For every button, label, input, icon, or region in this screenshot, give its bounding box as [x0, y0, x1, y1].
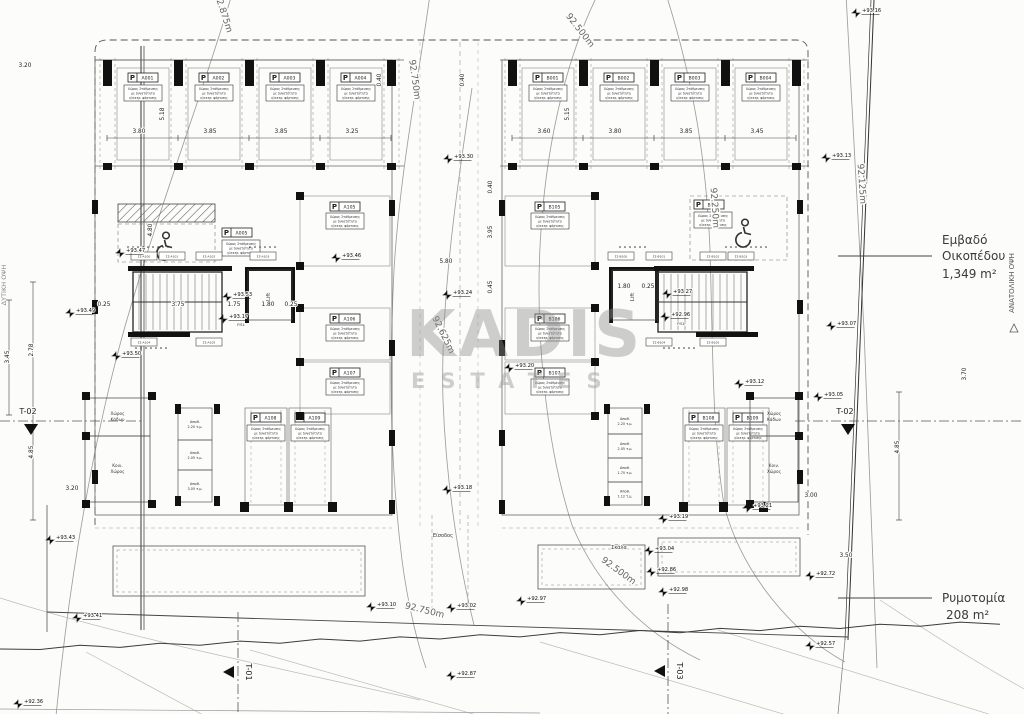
planter [658, 538, 800, 576]
parking-note-text: Χώρος Στάθμευσης [533, 87, 563, 91]
parking-note-text: ηλεκτρ. φόρτισης [534, 96, 562, 100]
column [389, 200, 395, 216]
vent-dot [730, 246, 732, 248]
column [316, 60, 325, 86]
room-label: Κοιν. [769, 463, 779, 468]
storage-label: Αποθ. [620, 442, 630, 446]
parking-note-text: με δυνατότητα [538, 331, 562, 335]
parking-stall-id: B109 [747, 416, 759, 422]
column [174, 163, 183, 170]
plot-area-value: 1,349 m² [942, 267, 997, 281]
vent-dot [745, 246, 747, 248]
vent-dot [167, 246, 169, 248]
core-wall [128, 332, 190, 337]
column [591, 358, 599, 366]
ground-line [718, 630, 995, 714]
vent-dot [157, 246, 159, 248]
column [82, 392, 90, 400]
column [214, 404, 220, 414]
column [499, 500, 505, 514]
dimension-text: 5.15 [565, 107, 571, 120]
spot-level-value: +93.18 [453, 485, 472, 491]
spot-level-value: +93.20 [515, 363, 534, 369]
column [679, 502, 688, 512]
parking-stall [289, 408, 331, 505]
parking-p-glyph: P [535, 74, 540, 82]
column [746, 392, 754, 400]
parking-note-text: με δυνατότητα [333, 385, 357, 389]
section-arrow [654, 665, 665, 677]
parking-note-text: Χώρος Στάθμευσης [330, 215, 360, 219]
vent-dot [629, 246, 631, 248]
parking-p-glyph: P [224, 229, 229, 237]
right-boundary [848, 0, 874, 640]
tag-box-label: ΣΣ-Β101 [653, 255, 666, 259]
vent-dot [740, 246, 742, 248]
dimension-text: 0.45 [488, 280, 494, 293]
section-arrow [223, 666, 234, 678]
column [389, 340, 395, 356]
parking-p-glyph: P [272, 74, 277, 82]
column [245, 163, 254, 170]
parking-note-text: με δυνατότητα [538, 385, 562, 389]
section-markers: T-02T-02T-01T-03 [0, 407, 1024, 714]
tag-box-label: ΣΣ-Α101 [166, 255, 179, 259]
tag-box-label: ΣΣ-Α104 [138, 341, 151, 345]
wheelchair-icon [736, 219, 751, 247]
contour-lines [0, 0, 1024, 714]
annotation-road-widening: Ρυμοτομία 208 m² [838, 591, 1005, 622]
storage-label: Αποθ. [620, 417, 630, 421]
parking-stall-id: A004 [355, 76, 367, 82]
spot-level-value: +92.97 [527, 596, 546, 602]
parking-note-text: με δυνατότητα [736, 431, 760, 435]
section-label: T-01 [244, 662, 253, 680]
parking-note-text: Χώρος Στάθμευσης [341, 87, 371, 91]
wheelchair-head [163, 232, 170, 239]
parking-note-text: Χώρος Στάθμευσης [675, 87, 705, 91]
site-boundary [0, 0, 1000, 714]
parking-note-text: με δυνατότητα [678, 91, 702, 95]
vent-dot [755, 246, 757, 248]
spot-level-value: +93.16 [862, 8, 881, 14]
parking-note-text: με δυνατότητα [692, 431, 716, 435]
column [499, 430, 505, 446]
column [499, 200, 505, 216]
parking-stall-id: B001 [547, 76, 559, 82]
parking-note-text: Χώρος Στάθμευσης [535, 327, 565, 331]
parking-note-text: Χώρος Στάθμευσης [270, 87, 300, 91]
parking-note-text: Χώρος Στάθμευσης [330, 327, 360, 331]
column [644, 404, 650, 414]
storage-area: 2.05 τ.μ. [618, 447, 633, 451]
spot-level-value: +93.05 [824, 392, 843, 398]
parking-p-glyph: P [332, 203, 337, 211]
lift-wall [609, 267, 613, 323]
east-elevation-label: ΑΝΑΤΟΛΙΚΗ ΟΨΗ [1008, 253, 1016, 313]
misc-label: Είσοδος [433, 532, 453, 539]
spot-level-value: +93.30 [454, 154, 473, 160]
dimension-text: 4.85 [29, 445, 35, 458]
column [92, 470, 98, 484]
storage-label: Αποθ. [190, 451, 200, 455]
parking-note-text: Χώρος Στάθμευσης [689, 427, 719, 431]
parking-note-text: ηλεκτρ. φόρτισης [676, 96, 704, 100]
spot-level-value: +92.98 [669, 587, 688, 593]
core-wall [128, 266, 232, 271]
dimension-text: 0.40 [488, 180, 494, 193]
storage-area: 1.12 τ.μ. [618, 495, 633, 499]
tag-box-label: ΣΣ-Β100 [615, 255, 628, 259]
vent-dot [269, 246, 271, 248]
plot-area-label-2: Οικοπέδου [942, 249, 1005, 263]
vent-dot [750, 246, 752, 248]
column [591, 262, 599, 270]
parking-note-text: ηλεκτρ. φόρτισης [129, 96, 157, 100]
dimension-text: 3.80 [133, 129, 146, 135]
vent-dot [693, 347, 695, 349]
parking-note-text: με δυνατότητα [298, 431, 322, 435]
parking-note-text: ηλεκτρ. φόρτισης [200, 96, 228, 100]
spot-level-value: +93.49 [76, 308, 95, 314]
parking-p-glyph: P [537, 315, 542, 323]
contour-label: 92.500m [563, 12, 596, 50]
parking-stall-id: A003 [284, 76, 296, 82]
spot-level-value: +93.02 [457, 603, 476, 609]
contour-92 [391, 0, 430, 668]
column [387, 163, 396, 170]
ground-line [540, 642, 790, 714]
column [650, 60, 659, 86]
spot-level-value: +93.27 [673, 289, 692, 295]
storage-label: Αποθ. [620, 490, 630, 494]
column [328, 502, 337, 512]
parking-note-text: με δυνατότητα [202, 91, 226, 95]
column [92, 200, 98, 214]
spot-level-value: +93.17 [229, 314, 248, 320]
parking-note-text: ηλεκτρ. φόρτισης [536, 224, 564, 228]
column [296, 412, 304, 420]
column [797, 470, 803, 484]
tag-box-label: ΣΣ-Β105 [707, 341, 720, 345]
spot-level-value: +93.13 [832, 153, 851, 159]
parking-note-text: με δυνατότητα [131, 91, 155, 95]
vent-dot [735, 246, 737, 248]
column [795, 432, 803, 440]
parking-note-text: ηλεκτρ. φόρτισης [331, 390, 359, 394]
column [174, 60, 183, 86]
parking-p-glyph: P [748, 74, 753, 82]
dimension-text: 4.85 [895, 440, 901, 453]
parking-note-text: ηλεκτρ. φόρτισης [536, 336, 564, 340]
column [387, 60, 396, 86]
parking-note-text: Χώρος Στάθμευσης [199, 87, 229, 91]
column [82, 432, 90, 440]
vent-dot [725, 246, 727, 248]
spot-level-value: +93.43 [56, 535, 75, 541]
column [797, 200, 803, 214]
dimension-text: 3.45 [751, 129, 764, 135]
parking-note-text: Χώρος Στάθμευσης [535, 215, 565, 219]
vent-dot [249, 246, 251, 248]
spot-level-value: +92.57 [816, 641, 835, 647]
dimensions: 3.203.803.853.853.253.603.803.853.455.18… [5, 63, 968, 559]
parking-p-glyph: P [696, 201, 701, 209]
core-wall [696, 332, 758, 337]
vent-dot [668, 347, 670, 349]
parking-note-text: με δυνατότητα [333, 331, 357, 335]
tag-box-label: ΣΣ-Α102 [203, 255, 216, 259]
sheet-bottom-line [0, 709, 540, 713]
planter [113, 546, 365, 596]
path [744, 227, 752, 235]
right-boundary-ext [838, 640, 845, 714]
parking-note-text: ηλεκτρ. φόρτισης [331, 336, 359, 340]
dimension-text: 3.50 [840, 553, 853, 559]
spot-level-value: +93.12 [745, 379, 764, 385]
parking-note-text: με δυνατότητα [254, 431, 278, 435]
ground-line [250, 650, 480, 714]
road-widening-line [47, 612, 848, 637]
room-label: Κάδων [767, 417, 782, 422]
parking-stall-id: B002 [618, 76, 630, 82]
room-label: Χώρος [110, 469, 125, 474]
vent-dot [663, 347, 665, 349]
vent-dot [688, 347, 690, 349]
column [797, 300, 803, 314]
storage-area: 2.20 τ.μ. [618, 422, 633, 426]
parking-stall-id: A005 [236, 231, 248, 237]
storage-label: Αποθ. [190, 420, 200, 424]
dimension-text: 0.25 [642, 284, 655, 290]
column [175, 404, 181, 414]
lift-label: Lift [266, 292, 272, 301]
parking-stall-id: A105 [344, 205, 356, 211]
parking-note-text: Χώρος Στάθμευσης [535, 381, 565, 385]
parking-stall [245, 408, 287, 505]
parking-p-glyph: P [332, 369, 337, 377]
spot-level-value: +92.86 [657, 567, 676, 573]
parking-note-text: με δυνατότητα [607, 91, 631, 95]
room-label: Χώρος [767, 411, 782, 416]
dimension-text: 3.20 [19, 63, 32, 69]
column [579, 60, 588, 86]
parking-stall-id: A002 [213, 76, 225, 82]
site-plan-drawing: PA001Χώρος Στάθμευσηςμε δυνατότηταηλεκτρ… [0, 0, 1024, 714]
misc-label: Σκάλα [611, 544, 627, 551]
column [245, 60, 254, 86]
vent-dot [155, 347, 157, 349]
lift-wall [291, 267, 295, 323]
column [604, 496, 610, 506]
parking-note-text: με δυνατότητα [333, 219, 357, 223]
parking-note-text: ηλεκτρ. φόρτισης [271, 96, 299, 100]
tag-box-label: ΣΣ-Α103 [257, 255, 270, 259]
parking-note-text: ηλεκτρ. φόρτισης [296, 436, 324, 440]
parking-stall-id: B106 [549, 317, 561, 323]
parking-note-text: ηλεκτρ. φόρτισης [252, 436, 280, 440]
east-elevation-arrow-icon [1010, 324, 1018, 332]
misc-label: P.SL [237, 322, 245, 327]
vent-dot [160, 347, 162, 349]
parking-note-text: Χώρος Στάθμευσης [746, 87, 776, 91]
path [736, 233, 750, 247]
spot-level-value: +92.96 [671, 312, 690, 318]
vent-dot [634, 246, 636, 248]
parking-stall-id: B004 [760, 76, 772, 82]
vent-dot [147, 246, 149, 248]
spot-level-value: +93.19 [669, 514, 688, 520]
parking-stall [727, 408, 769, 505]
vent-dot [673, 347, 675, 349]
vent-dot [145, 347, 147, 349]
parking-stall-id: A001 [142, 76, 154, 82]
dimension-text: 0.25 [285, 302, 298, 308]
spot-level-value: +93.41 [83, 613, 102, 619]
contour-label: 92.750m [404, 601, 445, 620]
column [284, 502, 293, 512]
vent-dot [683, 347, 685, 349]
vent-dot [140, 347, 142, 349]
planters [113, 538, 800, 596]
column [214, 496, 220, 506]
dimension-text: 0.25 [98, 302, 111, 308]
parking-note-text: Χώρος Στάθμευσης [251, 427, 281, 431]
west-elevation-label: ΔΥΤΙΚΗ ΟΨΗ [0, 265, 8, 306]
spot-level-value: +93.07 [837, 321, 856, 327]
dimension-text: 0.40 [377, 73, 383, 86]
wheelchair-head [742, 219, 749, 226]
section-arrow [841, 424, 855, 435]
parking-p-glyph: P [606, 74, 611, 82]
dimension-text: 3.85 [275, 129, 288, 135]
parking-stall-id: A108 [265, 416, 277, 422]
vent-dot [259, 246, 261, 248]
dimension-text: 3.85 [680, 129, 693, 135]
spot-level-value: +93.10 [377, 602, 396, 608]
column [499, 340, 505, 356]
dimension-text: 1.80 [618, 284, 631, 290]
parking-note-text: με δυνατότητα [749, 91, 773, 95]
parking-p-glyph: P [537, 369, 542, 377]
parking-note-text: Χώρος Στάθμευσης [733, 427, 763, 431]
column [103, 163, 112, 170]
dimension-text: 3.45 [5, 350, 11, 363]
column [792, 60, 801, 86]
section-arrow [24, 424, 38, 435]
parking-note-text: ηλεκτρ. φόρτισης [605, 96, 633, 100]
vent-dot [162, 246, 164, 248]
dimension-text: 5.80 [440, 259, 453, 265]
storage-room [608, 458, 642, 482]
parking-p-glyph: P [537, 203, 542, 211]
dimension-text: 3.70 [962, 367, 968, 380]
storage-room [178, 440, 212, 470]
ramp-hatch [118, 204, 215, 222]
lift-wall [245, 267, 295, 271]
storage-label: Αποθ. [190, 482, 200, 486]
storage-area: 1.70 τ.μ. [618, 471, 633, 475]
dimension-text: 3.20 [66, 486, 79, 492]
parking-stall-id: A106 [344, 317, 356, 323]
parking-note-text: ηλεκτρ. φόρτισης [342, 96, 370, 100]
storage-label: Αποθ. [620, 466, 630, 470]
storage-room [178, 408, 212, 440]
vent-dot [644, 246, 646, 248]
dimension-text: 5.18 [160, 107, 166, 120]
dimension-text: 3.95 [488, 225, 494, 238]
spot-level-value: +93.47 [126, 248, 145, 254]
spot-level-value: +92.36 [24, 699, 43, 705]
column [508, 60, 517, 86]
column [389, 430, 395, 446]
column [296, 192, 304, 200]
storage-room [608, 434, 642, 458]
parking-note-text: Χώρος Στάθμευσης [330, 381, 360, 385]
column [579, 163, 588, 170]
column [792, 163, 801, 170]
column [721, 163, 730, 170]
vent-dot [135, 347, 137, 349]
vent-dot [165, 347, 167, 349]
storage-room [608, 408, 642, 434]
storage-area: 2.05 τ.μ. [188, 456, 203, 460]
vent-dot [274, 246, 276, 248]
spot-level-value: +93.50 [122, 351, 141, 357]
column [175, 496, 181, 506]
column [389, 500, 395, 514]
parking-note-text: ηλεκτρ. φόρτισης [690, 436, 718, 440]
vent-dot [150, 347, 152, 349]
column [591, 192, 599, 200]
dimension-text: 0.40 [460, 73, 466, 86]
lift-wall [609, 267, 659, 271]
vent-dot [152, 246, 154, 248]
column [795, 392, 803, 400]
plot-area-label-1: Εμβαδό [942, 233, 987, 247]
column [82, 500, 90, 508]
parking-note-text: Χώρος Στάθμευσης [128, 87, 158, 91]
section-label: T-02 [835, 407, 853, 416]
column [591, 412, 599, 420]
vent-dot [264, 246, 266, 248]
parking-p-glyph: P [332, 315, 337, 323]
contour-label: 92.875m [212, 0, 234, 34]
parking-stall-id: B107 [549, 371, 561, 377]
tag-box-label: ΣΣ-Β104 [653, 341, 666, 345]
room-label: Χώρος [110, 411, 125, 416]
column [316, 163, 325, 170]
tag-box-label: ΣΣ-Β102 [707, 255, 720, 259]
right-boundary [845, 0, 871, 640]
dimension-text: 3.00 [805, 493, 818, 499]
spot-level-value: +92.72 [816, 571, 835, 577]
parking-stall-id: B105 [549, 205, 561, 211]
parking-note-text: με δυνατότητα [536, 91, 560, 95]
dimension-text: 3.75 [172, 302, 185, 308]
spot-level-value: +93.21 [753, 503, 772, 509]
tag-box-label: ΣΣ-Β103 [735, 255, 748, 259]
parking-p-glyph: P [735, 414, 740, 422]
storage-area: 3.05 τ.μ. [188, 487, 203, 491]
column [148, 392, 156, 400]
vent-dot [624, 246, 626, 248]
vent-dot [678, 347, 680, 349]
vent-dot [765, 246, 767, 248]
column [296, 262, 304, 270]
tag-box-label: ΣΣ-Α100 [138, 255, 151, 259]
parking-p-glyph: P [201, 74, 206, 82]
